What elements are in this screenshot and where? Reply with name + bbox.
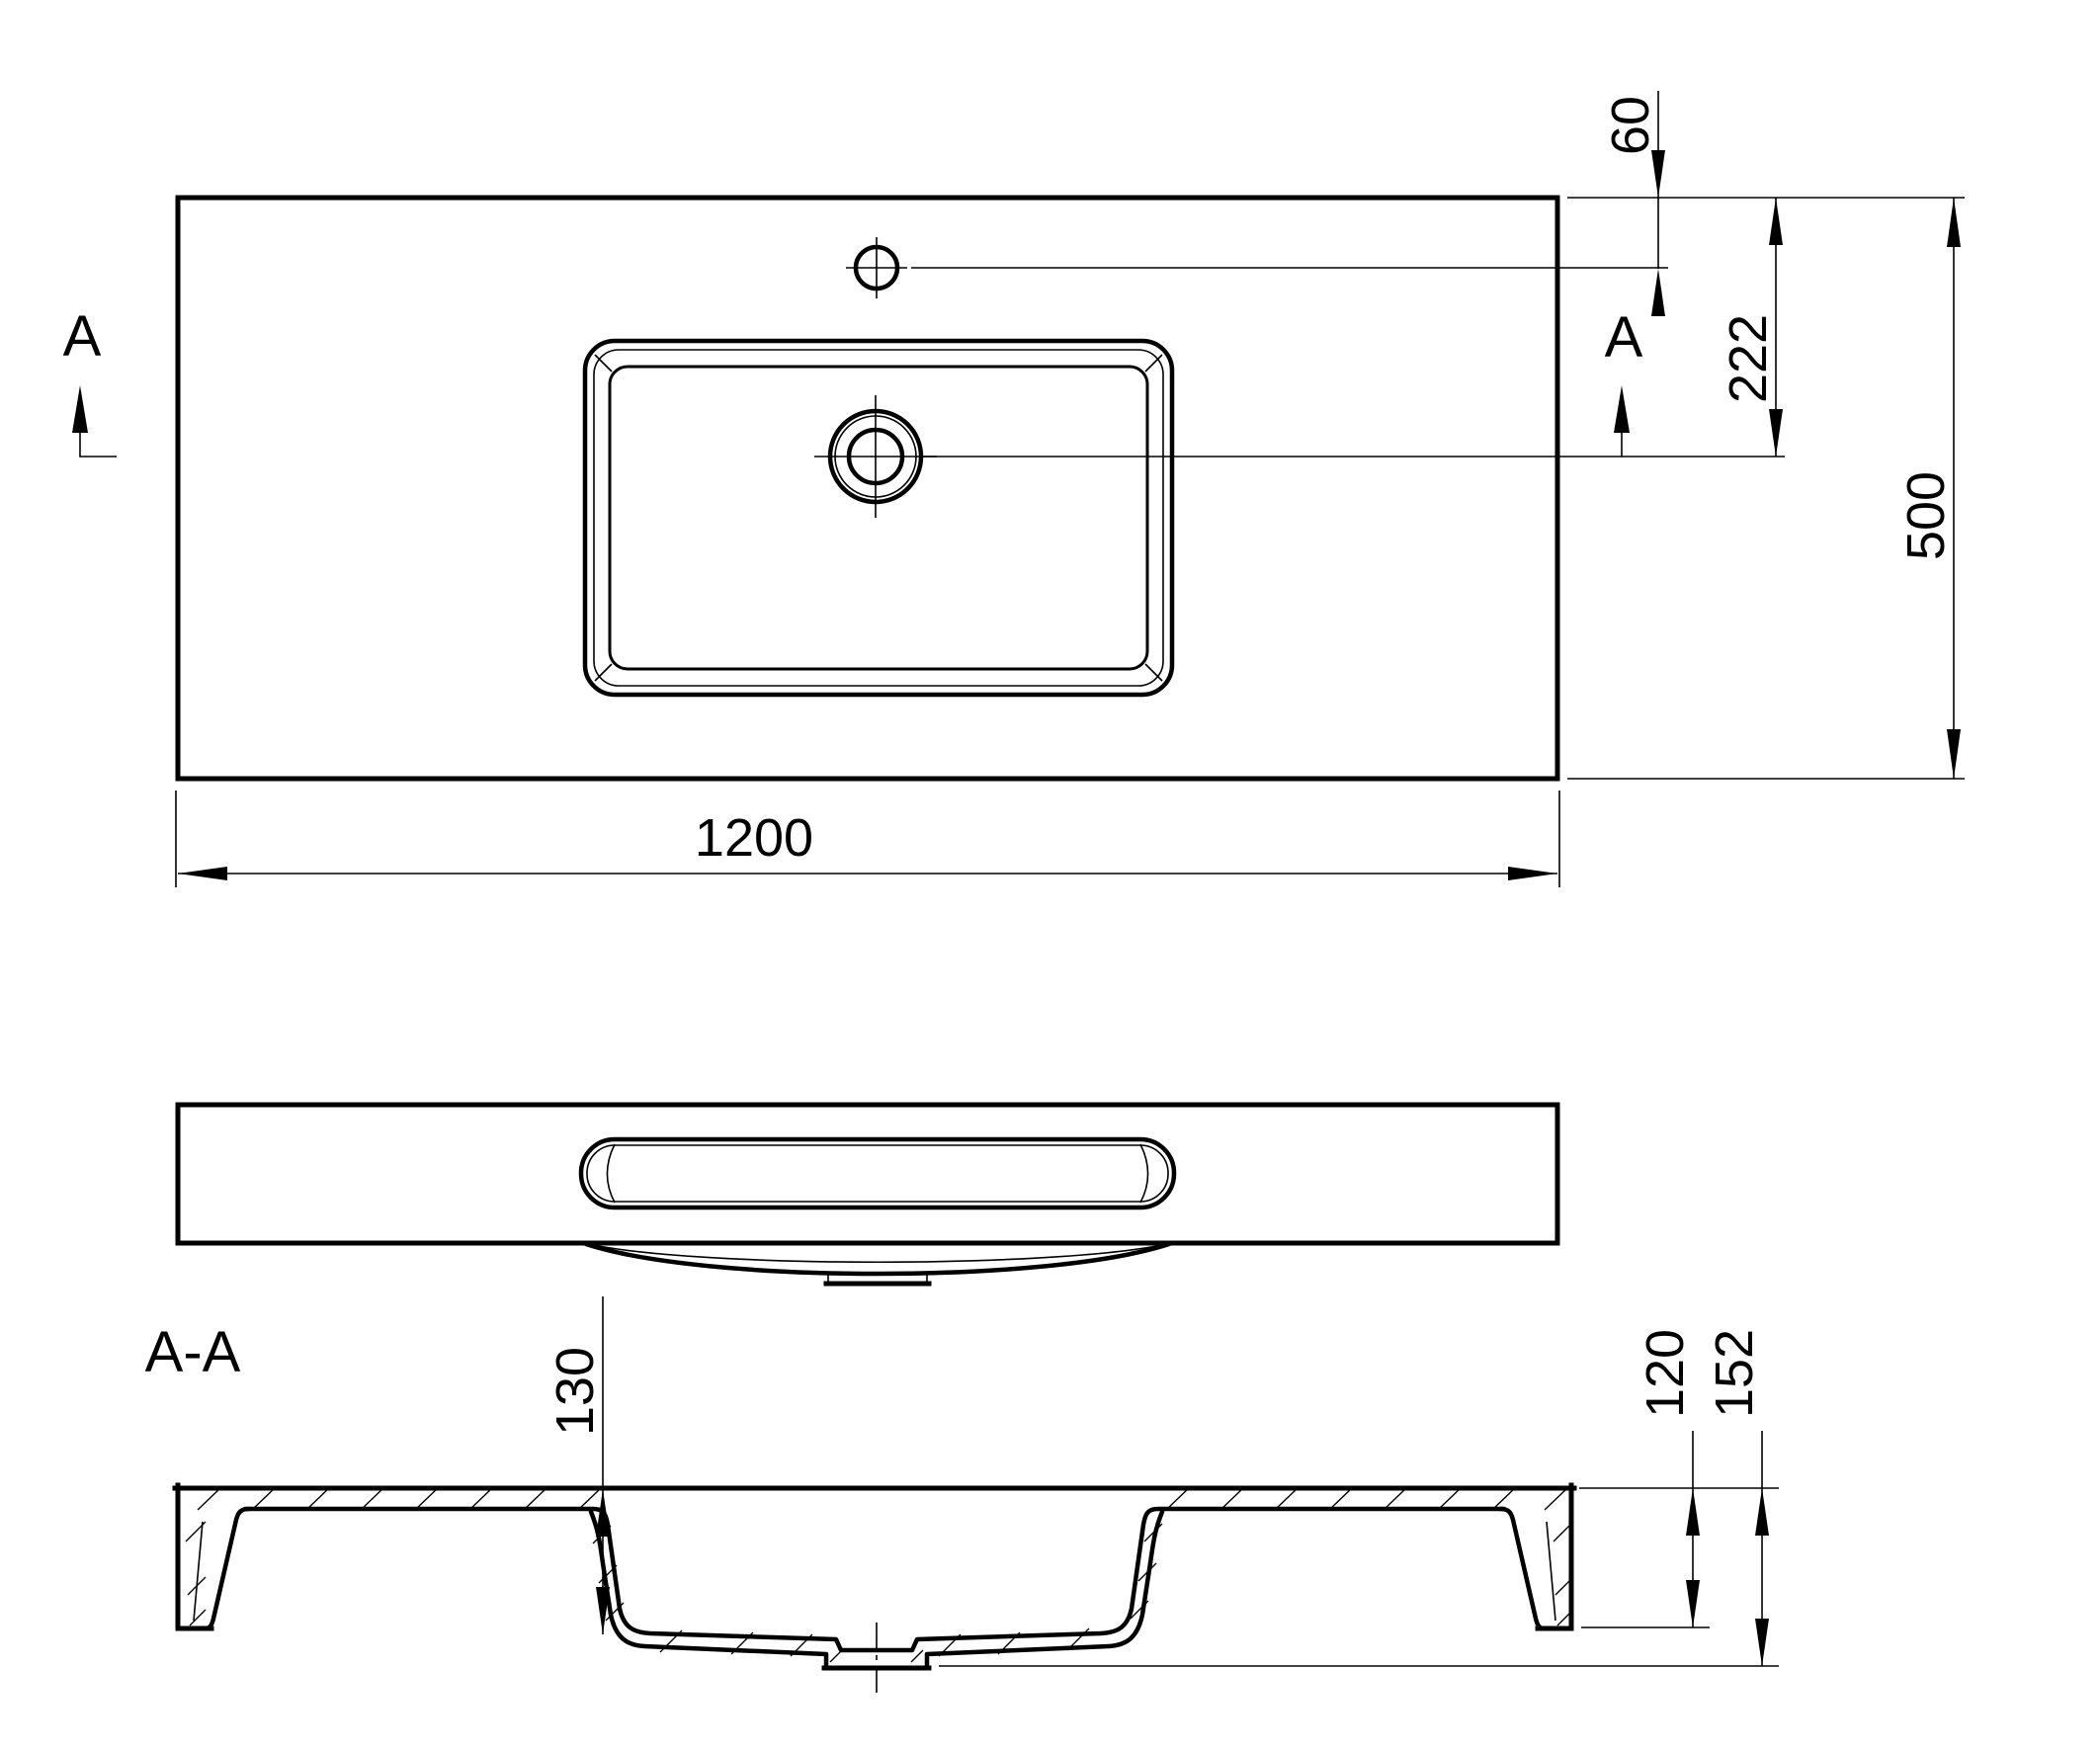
dim-120-text: 120 <box>1636 1329 1695 1418</box>
dim-130-arrow-up <box>596 1489 610 1537</box>
basin-rim <box>585 341 1172 695</box>
dim-500-arrow-up <box>1947 198 1961 247</box>
bowl-hatching <box>593 1524 1162 1662</box>
section-arrow-right <box>1614 385 1630 433</box>
drawing-sheet: 60 222 500 1200 A A <box>0 0 2100 1750</box>
section-dimensions: 130 120 152 <box>546 1296 1779 1666</box>
dim-130-arrow-down <box>596 1587 610 1634</box>
right-leg-inner <box>1500 1509 1545 1628</box>
dim-152-arrow-down <box>1755 1619 1769 1666</box>
dim-1200-arrow-right <box>1508 867 1557 880</box>
dim-120-arrow-up <box>1686 1488 1700 1536</box>
bowl-interior-profile <box>245 1509 1504 1650</box>
drain-hole <box>814 395 937 518</box>
dim-60-arrow-up <box>1651 269 1665 316</box>
dim-overall-width: 1200 <box>178 808 1557 880</box>
plan-view <box>178 198 1557 779</box>
dim-60-arrow-down <box>1651 150 1665 198</box>
dim-60-text: 60 <box>1601 96 1660 155</box>
dim-152-arrow-up <box>1755 1488 1769 1536</box>
dim-overall-depth: 500 <box>1896 198 1961 779</box>
basin-corner-ticks <box>595 355 1162 681</box>
dim-body-height: 120 <box>1636 1329 1700 1627</box>
slot-inner <box>587 1145 1168 1202</box>
dim-120-arrow-down <box>1686 1580 1700 1627</box>
front-basin-slot <box>581 1139 1174 1208</box>
dim-130-text: 130 <box>546 1347 605 1436</box>
cad-canvas: 60 222 500 1200 A A <box>0 0 2100 1750</box>
dim-222-arrow-up <box>1769 198 1783 245</box>
dim-overall-height: 152 <box>1705 1329 1769 1666</box>
section-view: A-A <box>145 1320 1574 1694</box>
section-marker-right: A <box>1605 305 1643 457</box>
plan-dimensions: 60 222 500 1200 A A <box>63 91 1965 887</box>
dim-222-text: 222 <box>1719 314 1778 403</box>
front-bowl-underside <box>586 1244 1169 1284</box>
dim-basin-depth: 130 <box>546 1296 610 1634</box>
leg-hatching <box>186 1522 1571 1625</box>
right-leg-thin-line <box>1547 1522 1555 1621</box>
section-left-leg <box>178 1485 249 1628</box>
left-leg-thin-line <box>194 1522 203 1621</box>
left-leg-inner <box>205 1509 249 1628</box>
slot-end-arcs <box>608 1144 1148 1203</box>
section-title-text: A-A <box>145 1320 241 1384</box>
drain-crosshair <box>814 395 937 518</box>
dim-faucet-offset: 60 <box>1601 91 1665 316</box>
faucet-hole-crosshair <box>846 237 907 298</box>
dim-drain-offset: 222 <box>1719 198 1783 457</box>
dim-152-text: 152 <box>1705 1329 1764 1418</box>
dim-500-arrow-down <box>1947 729 1961 779</box>
faucet-hole <box>846 237 907 298</box>
slot-outer <box>581 1139 1174 1208</box>
section-mark-left-text: A <box>63 304 102 369</box>
front-view <box>178 1105 1557 1284</box>
dim-1200-text: 1200 <box>695 808 813 868</box>
section-marker-left: A <box>63 304 117 457</box>
front-body-outline <box>178 1105 1557 1243</box>
section-bracket-left <box>80 433 117 457</box>
dim-1200-arrow-left <box>178 867 227 880</box>
basin-rim-middle <box>594 350 1163 686</box>
dim-500-text: 500 <box>1896 471 1956 560</box>
section-mark-right-text: A <box>1605 305 1643 370</box>
basin-rim-outer <box>585 341 1172 695</box>
underside-inner-arc <box>593 1245 1162 1262</box>
dim-222-arrow-down <box>1769 409 1783 457</box>
underside-outer-arc <box>586 1244 1169 1274</box>
section-right-leg <box>1500 1485 1571 1628</box>
section-arrow-left <box>72 385 88 433</box>
